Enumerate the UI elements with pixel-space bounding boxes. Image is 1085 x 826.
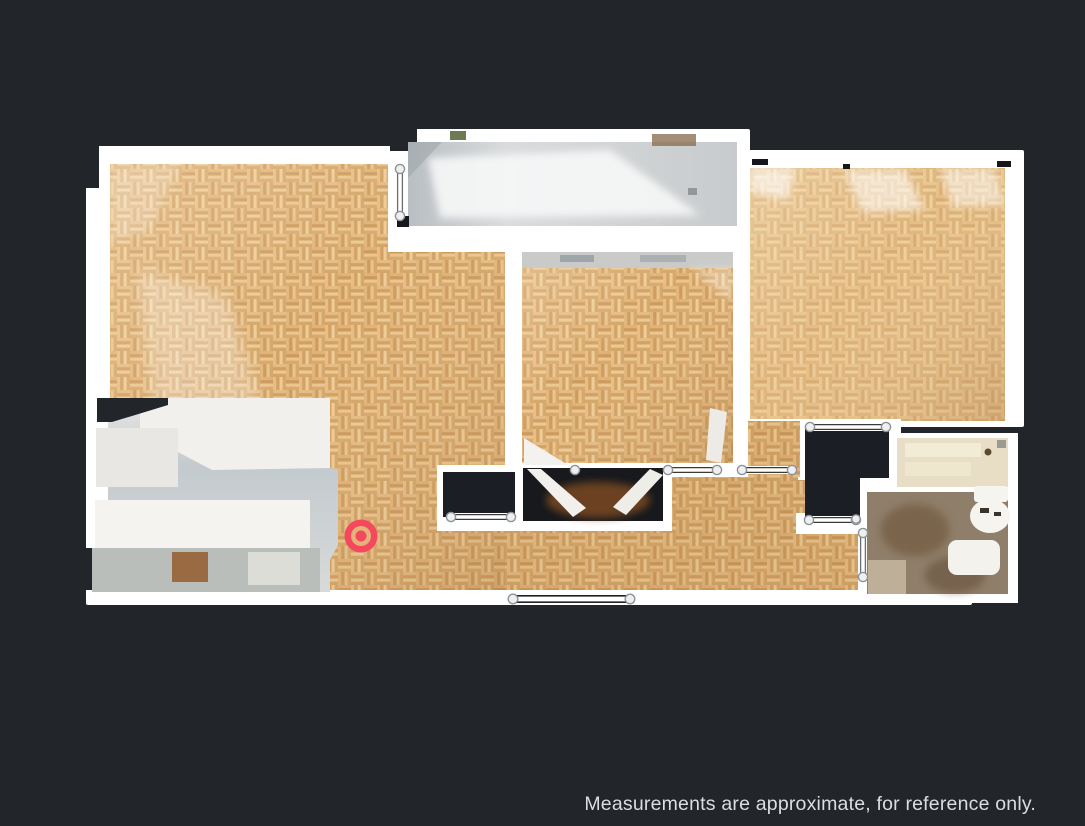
door-marker-connector [737, 465, 796, 474]
kitchen-floor[interactable] [92, 398, 338, 592]
balcony-floor[interactable] [408, 131, 737, 226]
balcony-clutter [652, 134, 696, 146]
kitchen-counter-front [95, 500, 310, 548]
sink [948, 540, 1000, 575]
bathtub-drain [985, 449, 992, 456]
floorplan-view: Measurements are approximate, for refere… [0, 0, 1085, 826]
door-node [852, 515, 860, 523]
door-marker-closet-b-top [805, 422, 890, 431]
door-node [570, 465, 579, 474]
toilet-detail [980, 508, 989, 513]
beam-detail [560, 255, 594, 262]
balcony-speck [688, 188, 697, 195]
kitchen-cabinet [96, 428, 178, 487]
door-marker-entrance [508, 594, 635, 604]
current-position-marker[interactable] [345, 520, 378, 553]
bathtub-highlight [905, 443, 981, 457]
wall-step-bathroom [855, 478, 900, 494]
ceiling-beam [522, 252, 733, 268]
door-marker-balcony [395, 164, 404, 220]
notch-top-left [80, 146, 99, 188]
kitchen-sink [248, 552, 300, 585]
cutting-board [172, 552, 208, 582]
marker-center-dot [356, 531, 367, 542]
beam-detail [640, 255, 686, 262]
floor-shadow [881, 504, 949, 556]
right-bedroom-floor[interactable] [750, 168, 1005, 421]
fixture-detail [997, 440, 1006, 448]
bathtub-highlight [905, 462, 971, 476]
notch-bottom-left [80, 548, 93, 590]
toilet-detail [994, 512, 1001, 516]
disclaimer-text: Measurements are approximate, for refere… [584, 793, 1036, 816]
door-marker-closet-a [446, 512, 515, 521]
balcony-plant [450, 131, 466, 140]
door-marker-middle-bedroom [663, 465, 721, 474]
middle-bedroom-floor[interactable] [522, 252, 733, 471]
bath-mat [868, 560, 906, 594]
floorplan-canvas[interactable] [0, 0, 1085, 826]
entry-vestibule [523, 468, 663, 521]
toilet [970, 499, 1010, 533]
closet-a-unscanned [443, 472, 515, 517]
